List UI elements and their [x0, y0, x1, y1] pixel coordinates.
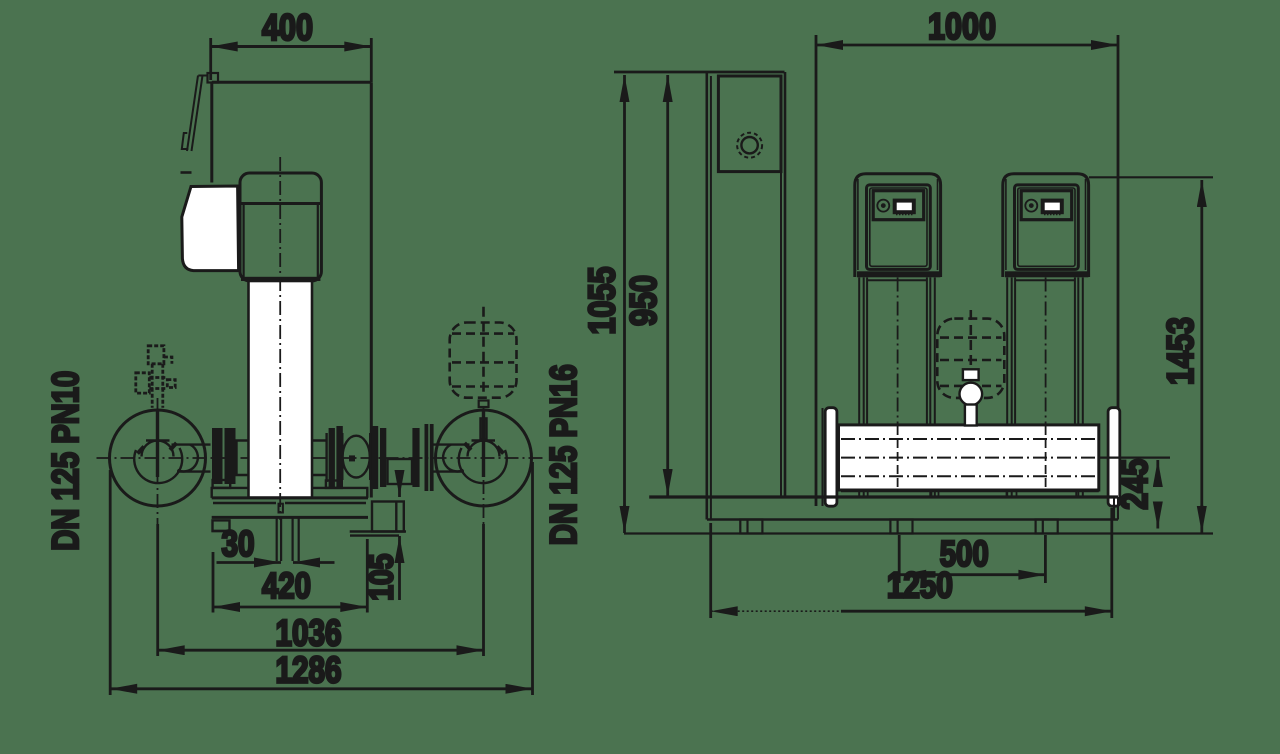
svg-text:1286: 1286: [276, 650, 342, 691]
svg-text:1036: 1036: [276, 613, 342, 654]
svg-text:400: 400: [262, 7, 313, 48]
svg-text:30: 30: [222, 523, 255, 564]
svg-text:1250: 1250: [887, 565, 953, 606]
svg-text:245: 245: [1114, 459, 1155, 510]
svg-text:1453: 1453: [1160, 317, 1201, 385]
svg-text:DN 125 PN10: DN 125 PN10: [45, 371, 86, 551]
svg-text:420: 420: [262, 565, 311, 606]
svg-text:105: 105: [363, 554, 400, 601]
svg-text:1055: 1055: [582, 267, 623, 335]
svg-text:DN 125 PN16: DN 125 PN16: [543, 364, 584, 545]
svg-text:1000: 1000: [928, 6, 996, 47]
svg-text:950: 950: [623, 275, 664, 326]
